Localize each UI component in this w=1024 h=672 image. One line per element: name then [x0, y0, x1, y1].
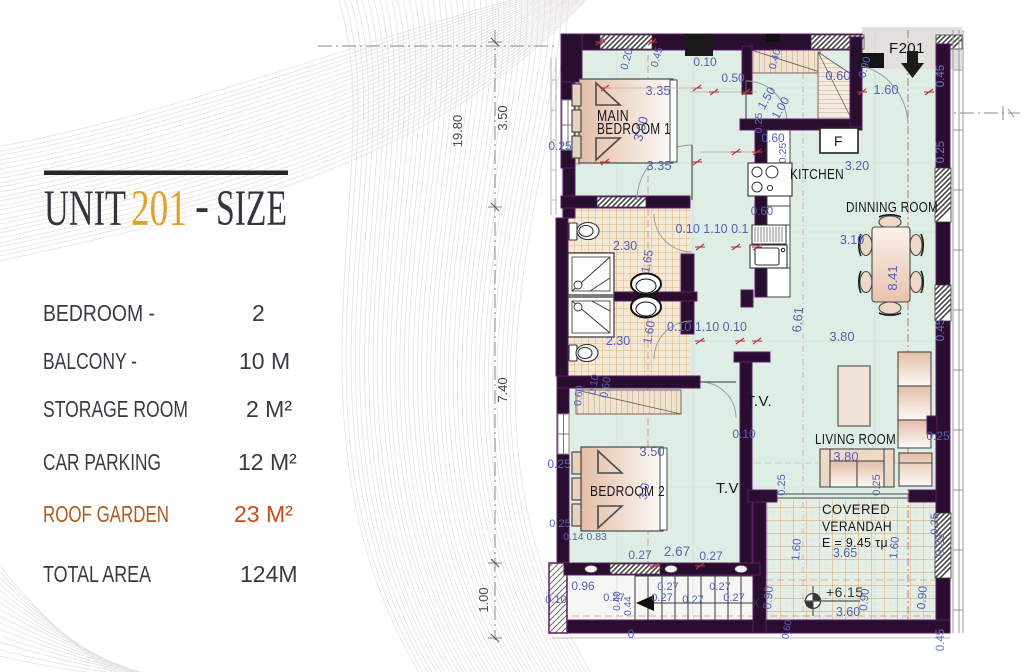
svg-text:BEDROOM 2: BEDROOM 2	[590, 483, 665, 500]
svg-text:0.25: 0.25	[935, 534, 947, 556]
svg-text:T.V.: T.V.	[746, 393, 772, 410]
svg-text:3.0: 3.0	[636, 482, 653, 501]
svg-text:124M: 124M	[240, 561, 298, 587]
svg-text:T.V: T.V	[716, 480, 739, 497]
svg-text:201: 201	[131, 181, 187, 237]
svg-text:0.25: 0.25	[547, 457, 571, 471]
svg-text:19.80: 19.80	[450, 115, 465, 148]
svg-text:2.30: 2.30	[606, 334, 630, 348]
svg-text:0.14 0.83: 0.14 0.83	[563, 531, 607, 543]
svg-text:1.60: 1.60	[873, 82, 898, 97]
svg-text:0.25: 0.25	[776, 474, 788, 495]
svg-text:ROOF GARDEN: ROOF GARDEN	[43, 501, 169, 527]
svg-text:0: 0	[628, 627, 635, 641]
svg-text:DINNING ROOM: DINNING ROOM	[846, 199, 938, 216]
svg-text:0.25: 0.25	[548, 139, 572, 153]
svg-text:0.50: 0.50	[721, 71, 745, 85]
svg-text:F: F	[834, 133, 843, 149]
svg-text:0.25: 0.25	[926, 429, 950, 443]
svg-text:COVERED: COVERED	[822, 501, 890, 517]
svg-text:12 M²: 12 M²	[238, 449, 297, 475]
svg-text:0.45: 0.45	[935, 629, 947, 651]
svg-text:LIVING ROOM: LIVING ROOM	[815, 431, 896, 448]
svg-text:0.25: 0.25	[935, 141, 947, 163]
svg-text:0.25: 0.25	[753, 113, 765, 134]
svg-text:0.60: 0.60	[572, 385, 586, 407]
svg-text:0.96: 0.96	[571, 579, 595, 593]
svg-text:0.10: 0.10	[545, 594, 566, 606]
svg-text:2: 2	[252, 300, 265, 326]
svg-text:8.41: 8.41	[885, 265, 900, 290]
svg-text:KITCHEN: KITCHEN	[790, 166, 844, 183]
svg-text:6.61: 6.61	[789, 306, 806, 333]
svg-text:3.50: 3.50	[495, 105, 510, 130]
svg-text:0.27: 0.27	[628, 548, 652, 562]
svg-text:0.45: 0.45	[935, 65, 947, 87]
svg-text:0.90: 0.90	[914, 585, 930, 610]
svg-text:VERANDAH: VERANDAH	[822, 518, 892, 534]
svg-text:2.67: 2.67	[664, 544, 690, 559]
svg-text:0.45: 0.45	[935, 319, 947, 341]
svg-text:23 M²: 23 M²	[234, 501, 293, 527]
svg-text:0.10: 0.10	[732, 427, 756, 441]
svg-text:1.60: 1.60	[790, 538, 804, 561]
svg-text:0.60: 0.60	[825, 68, 850, 83]
svg-text:UNIT: UNIT	[44, 181, 126, 237]
svg-text:CAR PARKING: CAR PARKING	[43, 449, 161, 475]
svg-text:BALCONY -: BALCONY -	[43, 348, 137, 374]
svg-text:STORAGE ROOM: STORAGE ROOM	[43, 396, 188, 422]
svg-text:0.27: 0.27	[651, 592, 672, 604]
svg-text:+6.15: +6.15	[826, 584, 863, 600]
svg-text:3.80: 3.80	[829, 329, 854, 344]
svg-text:3.50: 3.50	[639, 444, 664, 459]
svg-text:3.35: 3.35	[645, 83, 670, 98]
svg-text:TOTAL AREA: TOTAL AREA	[43, 561, 152, 587]
svg-text:1.60: 1.60	[888, 536, 902, 559]
svg-text:0.10 1.10 0.10: 0.10 1.10 0.10	[667, 320, 747, 334]
svg-text:3.65: 3.65	[833, 546, 857, 560]
svg-text:0.27: 0.27	[699, 549, 723, 563]
svg-text:0.25: 0.25	[549, 518, 570, 530]
svg-text:0.40: 0.40	[612, 591, 623, 611]
svg-text:3.10: 3.10	[840, 233, 864, 247]
svg-text:0.27: 0.27	[723, 592, 744, 604]
svg-text:0.27: 0.27	[682, 594, 703, 606]
svg-text:SIZE: SIZE	[216, 181, 287, 237]
svg-text:10 M: 10 M	[239, 348, 290, 374]
svg-text:3.60: 3.60	[836, 605, 860, 619]
svg-text:2 M²: 2 M²	[246, 396, 292, 422]
svg-text:0.25: 0.25	[777, 143, 789, 164]
svg-text:2.30: 2.30	[613, 239, 637, 253]
svg-text:0.60: 0.60	[751, 206, 773, 218]
svg-text:7.40: 7.40	[495, 377, 510, 402]
svg-text:0.90: 0.90	[760, 585, 776, 610]
svg-text:BEDROOM -: BEDROOM -	[43, 300, 155, 326]
svg-text:0.25: 0.25	[871, 474, 883, 495]
svg-text:0.25: 0.25	[929, 513, 941, 534]
svg-text:0.60: 0.60	[780, 619, 794, 641]
svg-text:3.80: 3.80	[833, 449, 858, 464]
svg-text:3.35: 3.35	[646, 158, 671, 173]
svg-text:F201: F201	[889, 40, 925, 57]
svg-text:3.20: 3.20	[845, 159, 869, 173]
svg-text:-: -	[195, 178, 209, 234]
svg-text:0.44: 0.44	[623, 596, 634, 616]
svg-text:0.10 1.10 0.1: 0.10 1.10 0.1	[676, 222, 749, 236]
svg-text:0.10: 0.10	[693, 55, 717, 69]
svg-text:1.00: 1.00	[476, 587, 491, 612]
